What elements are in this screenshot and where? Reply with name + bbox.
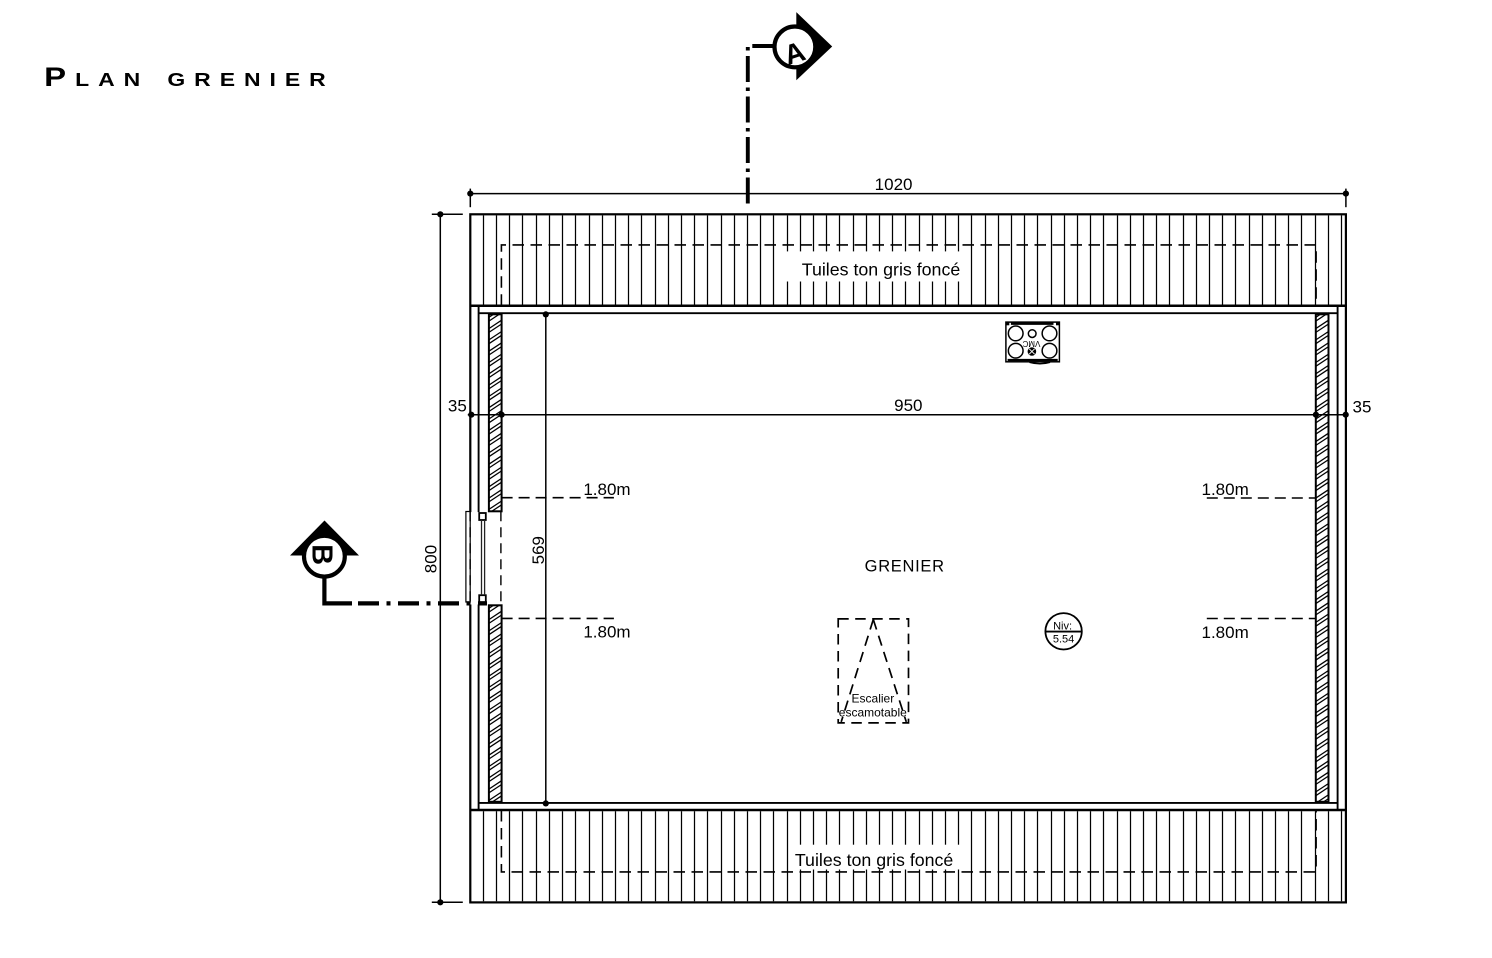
svg-text:1.80m: 1.80m (1202, 480, 1249, 499)
svg-text:950: 950 (894, 396, 922, 415)
svg-text:Plan grenier: Plan grenier (44, 63, 335, 93)
svg-text:Niv:: Niv: (1053, 621, 1072, 633)
svg-text:VMC: VMC (1022, 339, 1040, 348)
svg-text:569: 569 (529, 536, 548, 564)
svg-text:1.80m: 1.80m (583, 622, 630, 641)
svg-text:35: 35 (448, 397, 467, 416)
svg-text:B: B (305, 544, 337, 565)
svg-text:GRENIER: GRENIER (865, 558, 945, 576)
svg-text:Tuiles ton gris foncé: Tuiles ton gris foncé (795, 850, 954, 870)
svg-text:1.80m: 1.80m (583, 480, 630, 499)
svg-text:800: 800 (422, 545, 441, 573)
svg-text:escamotable: escamotable (839, 705, 907, 719)
svg-text:1020: 1020 (875, 175, 913, 194)
svg-text:5.54: 5.54 (1053, 633, 1074, 645)
svg-text:1.80m: 1.80m (1202, 623, 1249, 642)
svg-text:Escalier: Escalier (852, 692, 895, 706)
svg-text:35: 35 (1353, 398, 1372, 417)
svg-text:Tuiles ton gris foncé: Tuiles ton gris foncé (802, 259, 961, 279)
